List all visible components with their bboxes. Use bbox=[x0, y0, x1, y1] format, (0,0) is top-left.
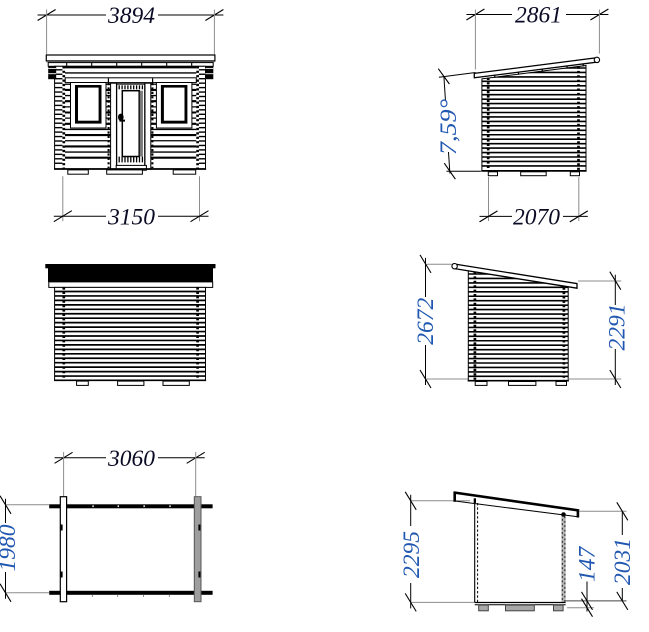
svg-text:2295: 2295 bbox=[399, 531, 425, 578]
svg-text:3894: 3894 bbox=[107, 3, 155, 29]
svg-text:3150: 3150 bbox=[107, 204, 155, 230]
svg-text:2291: 2291 bbox=[605, 304, 631, 351]
svg-text:2070: 2070 bbox=[513, 205, 560, 231]
svg-text:7,59°: 7,59° bbox=[436, 99, 462, 155]
svg-text:1980: 1980 bbox=[0, 524, 21, 571]
svg-text:3060: 3060 bbox=[107, 446, 155, 472]
svg-text:2672: 2672 bbox=[413, 298, 439, 345]
svg-text:2861: 2861 bbox=[515, 3, 562, 29]
svg-text:2031: 2031 bbox=[610, 538, 636, 585]
svg-text:147: 147 bbox=[575, 546, 601, 583]
